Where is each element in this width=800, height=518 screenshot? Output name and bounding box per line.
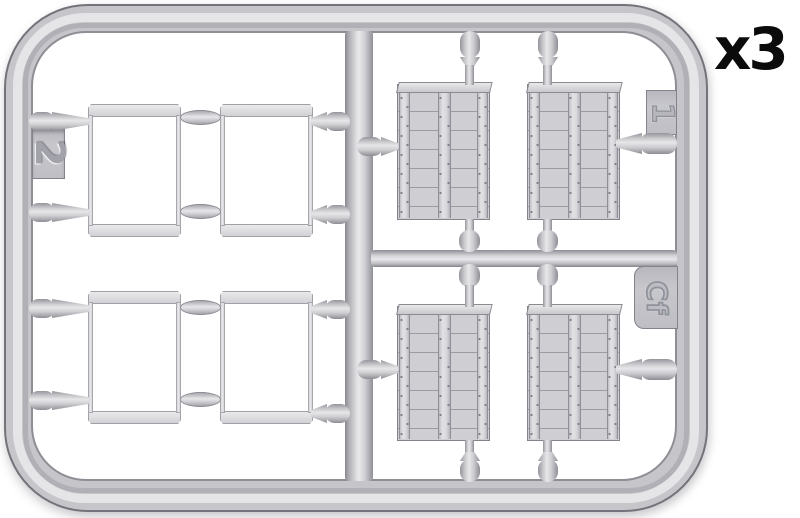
- frame-bottom-strip: [220, 224, 313, 237]
- panel-stile-center: [568, 315, 581, 439]
- frame-bottom-strip: [88, 411, 181, 424]
- planked-panel-part: [397, 84, 490, 220]
- gate-stem: [465, 440, 474, 454]
- sprue-diagram: x3 2 1 Cf: [0, 0, 800, 518]
- planked-panel-part: [527, 306, 620, 441]
- lens-connector: [180, 392, 221, 407]
- gate-stem: [543, 440, 552, 454]
- planked-panel-part: [397, 306, 490, 441]
- frame-bottom-strip: [88, 224, 181, 237]
- panel-stile-left: [529, 315, 540, 439]
- lens-connector: [180, 300, 221, 315]
- open-frame-part: [88, 291, 181, 424]
- planked-panel-part: [527, 84, 620, 220]
- part-number-tab: 1: [646, 90, 677, 135]
- panel-top-cap: [396, 304, 493, 315]
- lens-connector: [180, 204, 221, 219]
- sprue-number-tab-label: 2: [29, 139, 69, 167]
- gate-capsule: [29, 112, 55, 131]
- gate-capsule: [537, 264, 558, 287]
- gate-capsule: [325, 300, 350, 319]
- gate-capsule: [29, 391, 55, 410]
- quantity-label: x3: [714, 20, 786, 78]
- gate-capsule: [357, 360, 383, 379]
- panel-stile-center: [438, 315, 451, 439]
- frame-top-strip: [88, 291, 181, 304]
- open-frame-part: [220, 291, 313, 424]
- open-frame-part: [220, 104, 313, 237]
- panel-stile-right: [607, 93, 618, 218]
- open-frame-part: [88, 104, 181, 237]
- gate-capsule: [460, 31, 480, 58]
- frame-right-stile: [308, 302, 313, 413]
- panel-stile-right: [477, 315, 488, 439]
- panel-stile-left: [399, 93, 410, 218]
- frame-left-stile: [220, 302, 225, 413]
- panel-top-cap: [526, 82, 623, 93]
- gate-capsule: [537, 230, 558, 252]
- gate-capsule: [460, 459, 480, 482]
- part-number-tab-label: 1: [647, 102, 677, 123]
- gate-capsule: [538, 31, 558, 58]
- gate-capsule: [640, 133, 677, 154]
- panel-stile-center: [568, 93, 581, 218]
- gate-stem: [543, 285, 552, 307]
- sprue-number-tab: 2: [32, 127, 65, 179]
- gate-capsule: [459, 264, 480, 287]
- gate-stem: [465, 285, 474, 307]
- gate-capsule: [29, 203, 55, 222]
- gate-capsule: [325, 205, 350, 224]
- sprue-letter-tab-label: Cf: [642, 280, 670, 315]
- gate-capsule: [538, 459, 558, 482]
- panel-stile-left: [399, 315, 410, 439]
- gate-stem: [465, 65, 474, 85]
- panel-stile-center: [438, 93, 451, 218]
- frame-top-strip: [88, 104, 181, 117]
- panel-stile-right: [607, 315, 618, 439]
- frame-left-stile: [88, 302, 93, 413]
- gate-capsule: [325, 112, 350, 131]
- panel-top-cap: [526, 304, 623, 315]
- gate-capsule: [459, 230, 480, 252]
- lens-connector: [180, 110, 221, 125]
- middle-runner: [371, 250, 677, 267]
- gate-capsule: [325, 404, 350, 423]
- gate-stem: [543, 65, 552, 85]
- sprue-letter-tab: Cf: [634, 266, 678, 329]
- gate-capsule: [357, 137, 383, 156]
- frame-top-strip: [220, 291, 313, 304]
- panel-stile-left: [529, 93, 540, 218]
- panel-top-cap: [396, 82, 493, 93]
- frame-top-strip: [220, 104, 313, 117]
- gate-capsule: [640, 359, 677, 380]
- frame-bottom-strip: [220, 411, 313, 424]
- frame-right-stile: [308, 115, 313, 226]
- panel-stile-right: [477, 93, 488, 218]
- gate-capsule: [29, 299, 55, 318]
